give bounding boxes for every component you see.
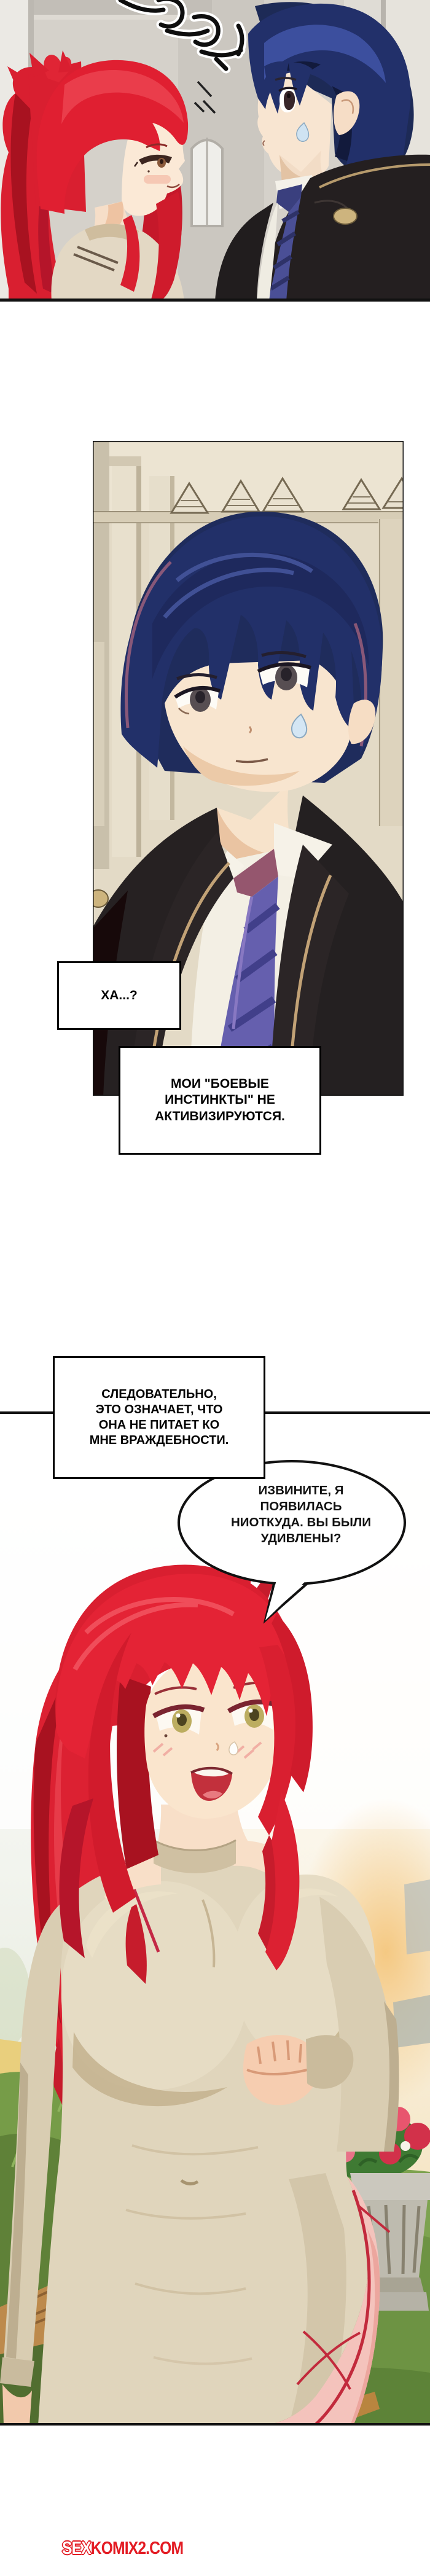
svg-text:УДИВЛЕНЫ?: УДИВЛЕНЫ?	[261, 1531, 342, 1545]
svg-text:ПОЯВИЛАСЬ: ПОЯВИЛАСЬ	[260, 1499, 342, 1513]
svg-text:ИЗВИНИТЕ, Я: ИЗВИНИТЕ, Я	[259, 1483, 344, 1497]
svg-text:НИОТКУДА. ВЫ БЫЛИ: НИОТКУДА. ВЫ БЫЛИ	[231, 1515, 371, 1529]
